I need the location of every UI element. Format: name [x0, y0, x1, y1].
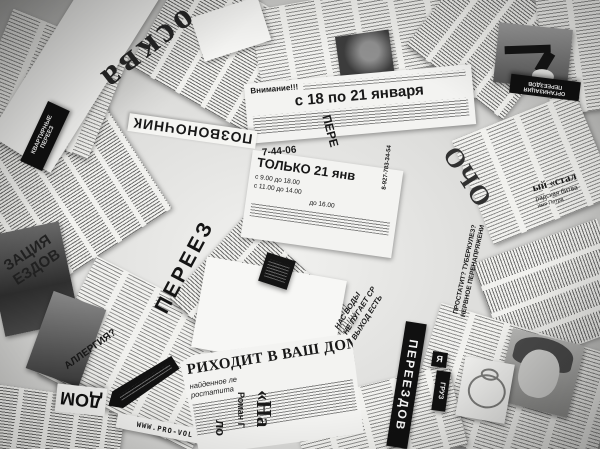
kettle-illustration	[455, 356, 515, 424]
dom-clipping: ДОМ	[55, 383, 108, 416]
newspaper-collage-photo: осква КВАРТИРНЫЕ ПЕРЕЕЗ Внимание!!! с 18…	[0, 0, 600, 449]
dom-text: ДОМ	[59, 387, 103, 412]
roman-vertical-text: Роман Г	[236, 392, 246, 428]
lo-vertical-text: ло	[213, 420, 228, 436]
gruz-text: ГРУЗ	[436, 382, 446, 400]
na-quote-vertical-text: «На	[251, 390, 276, 427]
ya-text: Я	[436, 354, 444, 364]
badge-texture	[264, 259, 290, 283]
ya-chip: Я	[431, 351, 448, 368]
